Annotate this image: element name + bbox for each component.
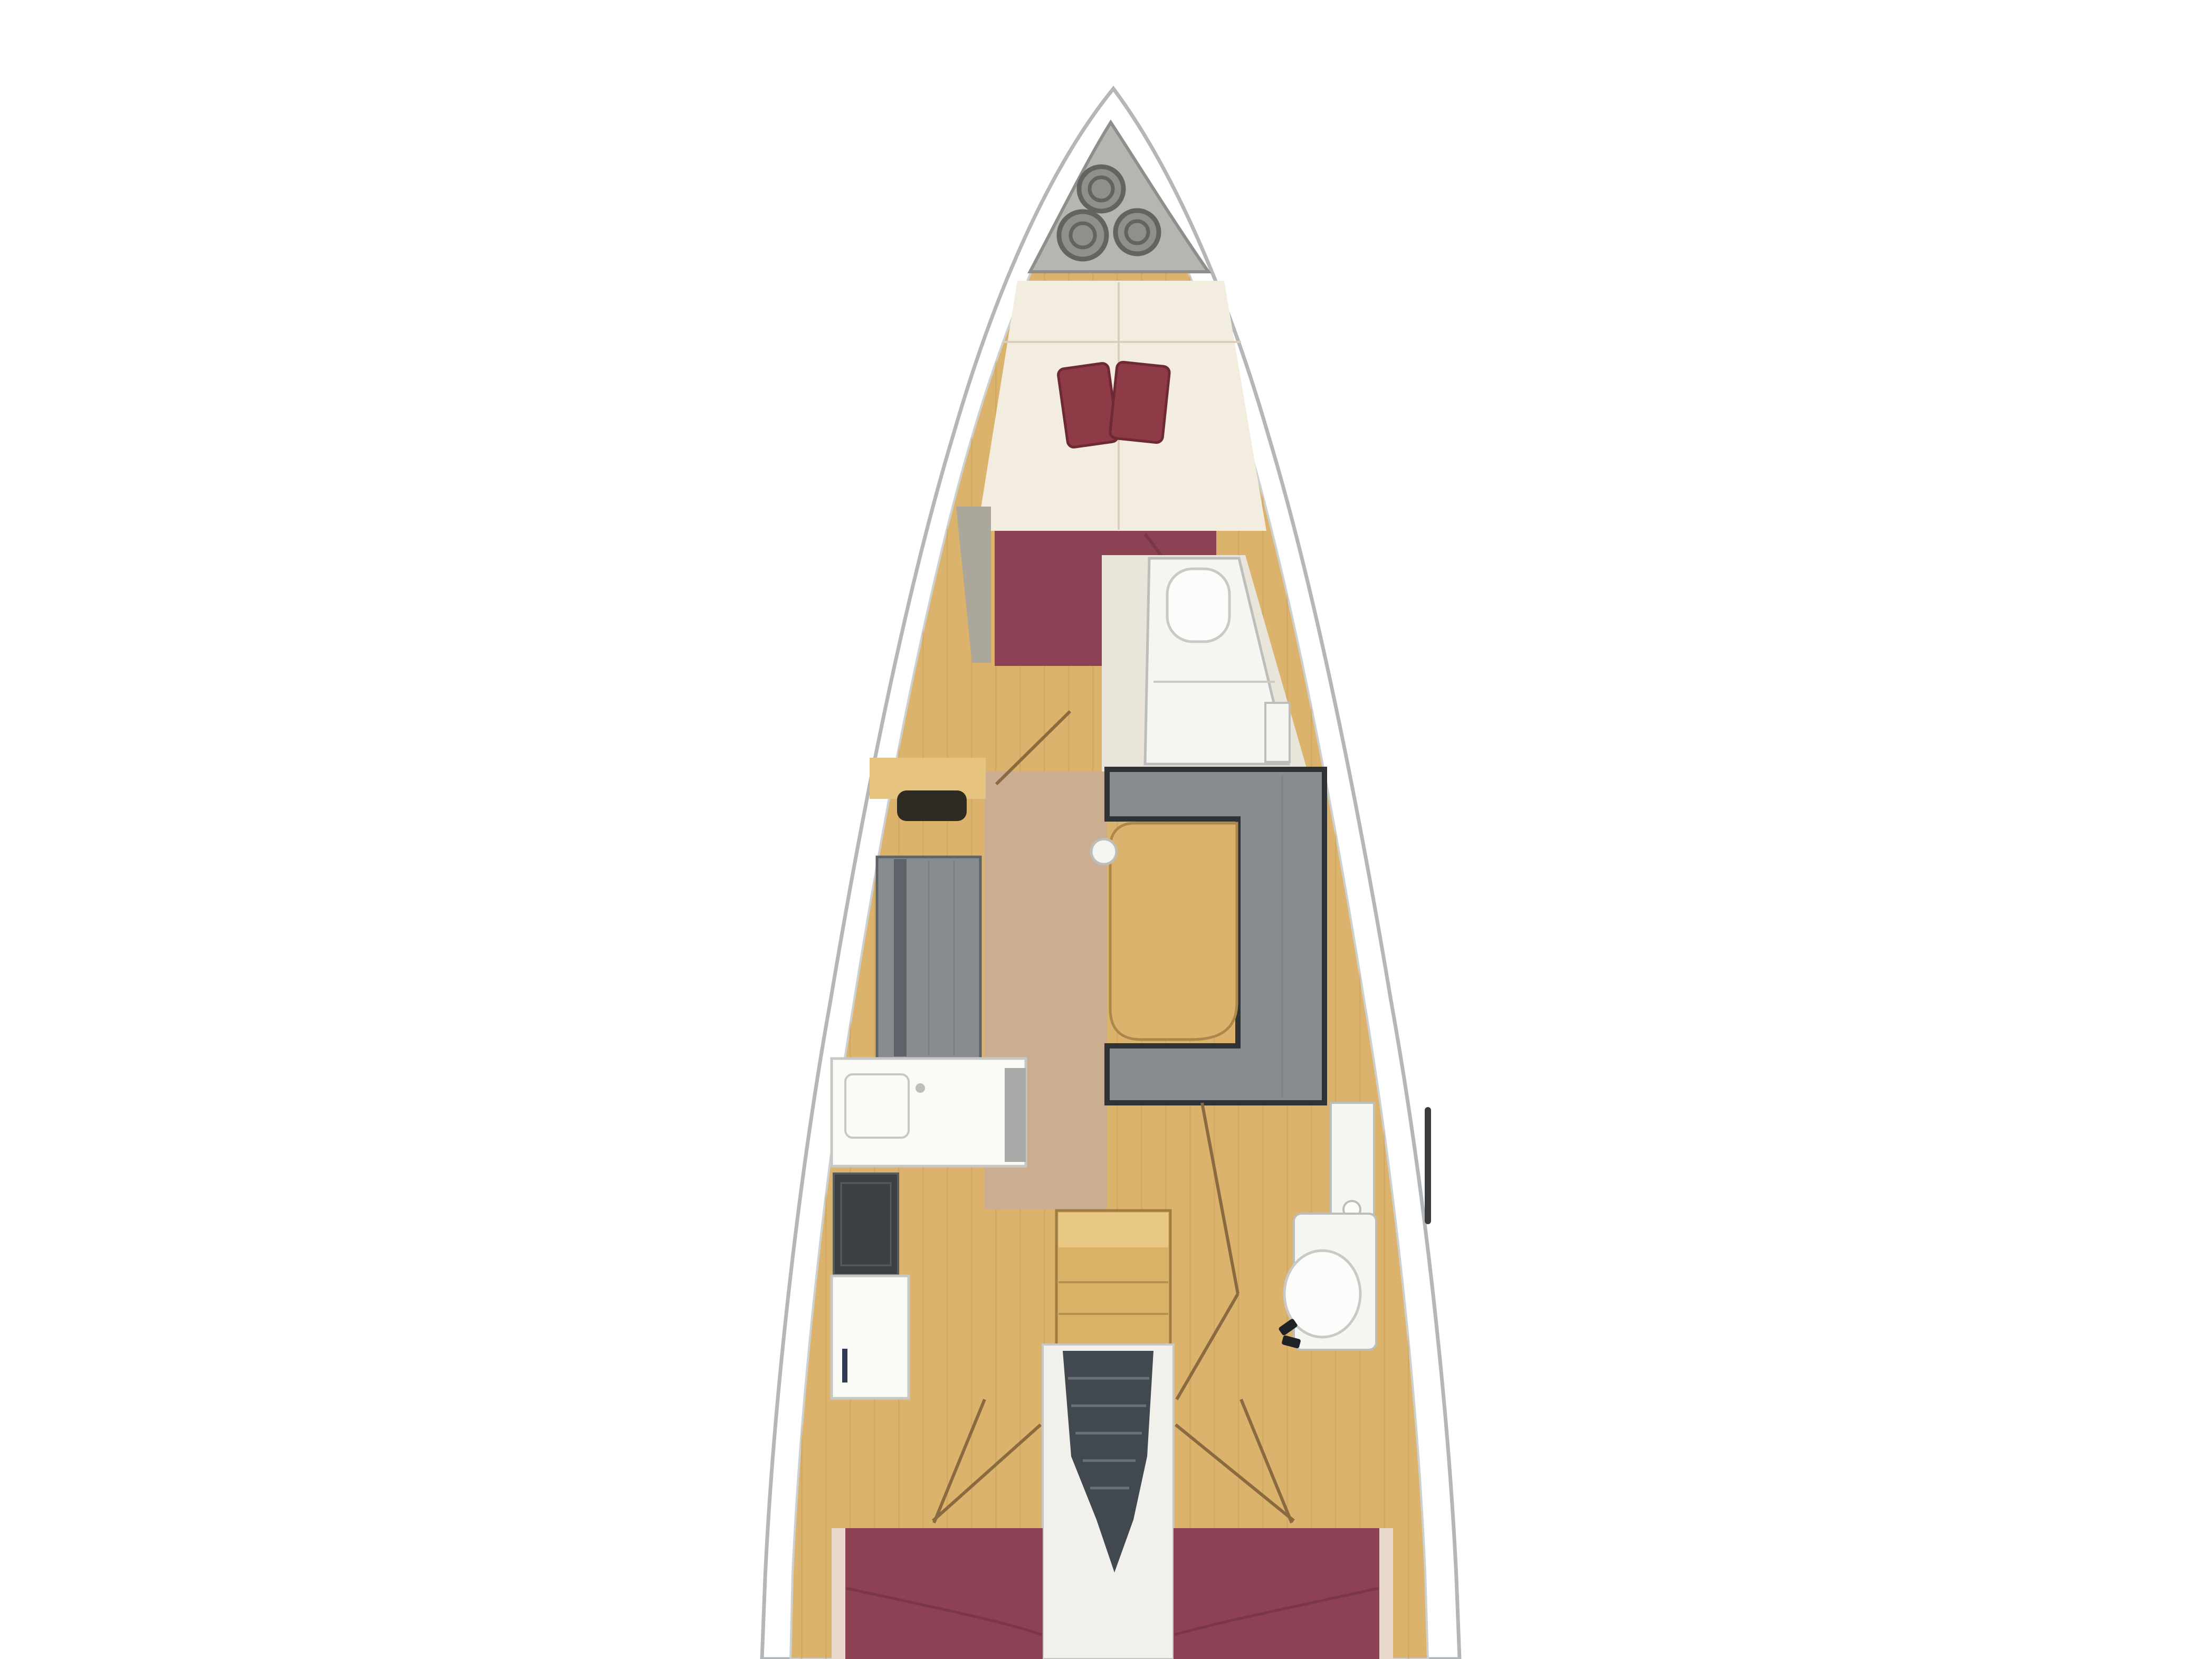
table-post (1091, 839, 1117, 864)
rope-coil-icon (1115, 211, 1159, 254)
pillow-right (1110, 361, 1170, 443)
galley-counter-side (1005, 1068, 1026, 1162)
pillow-left (1057, 363, 1119, 448)
aft-cabin-port (832, 1528, 1043, 1659)
yacht-floorplan (0, 0, 2212, 1659)
yacht-floorplan-canvas (0, 0, 2212, 1659)
galley-stove (834, 1174, 898, 1275)
port-settee-backrest (894, 859, 907, 1056)
companionway-seat-top (1059, 1213, 1168, 1247)
companionway-seat (1056, 1210, 1170, 1349)
galley-handle (842, 1349, 847, 1382)
port-shelf-slot (897, 790, 967, 821)
forward-head-side-box (1265, 703, 1290, 762)
companionway (1043, 1345, 1174, 1659)
aft-starboard-bed-trim (1379, 1528, 1393, 1659)
forward-toilet-lid (1167, 569, 1229, 642)
salon-table (1110, 823, 1237, 1040)
hull-window-slot (1425, 1107, 1431, 1224)
port-settee (877, 857, 980, 1059)
galley-faucet-icon (916, 1083, 925, 1093)
aft-cabin-starboard (1174, 1528, 1393, 1659)
rope-coil-icon (1059, 212, 1107, 259)
rope-coil-icon (1079, 167, 1123, 211)
aft-port-bed-trim (832, 1528, 845, 1659)
